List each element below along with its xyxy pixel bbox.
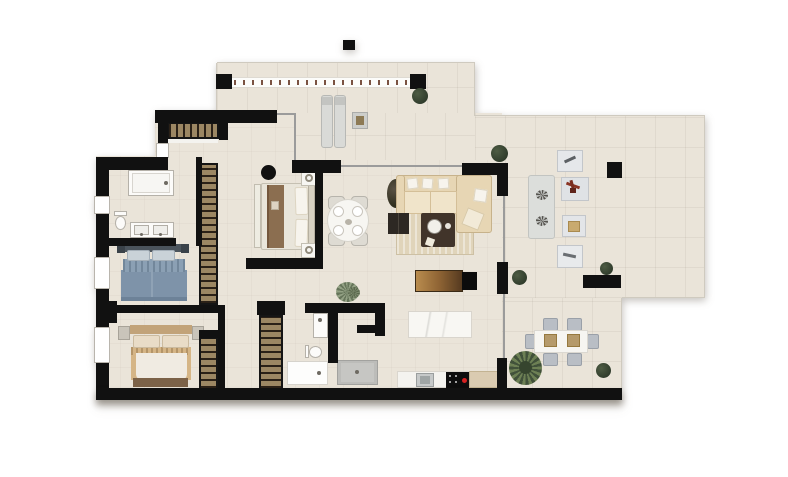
place-setting-1 — [333, 206, 344, 217]
wall-bath2-stub — [357, 325, 385, 333]
tv-console — [415, 270, 463, 292]
washbasin-2 — [313, 313, 328, 338]
wardrobe-hall — [259, 315, 283, 390]
chaise-pillow — [473, 188, 488, 203]
wall-pier-mid — [497, 262, 508, 294]
toilet-2-bowl — [309, 346, 322, 358]
wall-bath2-top — [305, 303, 385, 313]
window-bedroom3 — [94, 327, 110, 363]
sofa-pillow-2 — [422, 178, 434, 190]
terrace-plant-2 — [491, 145, 508, 162]
lounger-panel — [528, 175, 555, 239]
wardrobe-entry — [167, 122, 219, 139]
bed3-sheet — [136, 353, 187, 380]
terrace-sliding-door-lower — [503, 294, 505, 358]
wall-outer-bottom — [96, 388, 622, 400]
wall-wardrobe-cap — [199, 330, 219, 338]
wall-master-top — [155, 110, 277, 123]
bed2-duvet — [121, 270, 187, 300]
pouf-3-cushion — [568, 221, 580, 232]
master-bed-headboard — [308, 184, 315, 250]
hob-red-indicator — [462, 378, 467, 383]
placemat-2 — [567, 334, 580, 347]
railing-post-left — [216, 74, 232, 89]
wall-bath2-mid — [328, 313, 338, 363]
dried-plant-pot — [570, 188, 576, 193]
terrace-plant-4 — [600, 262, 613, 275]
sofa-seat-divider — [430, 191, 431, 214]
terrace-sliding-door-upper — [503, 196, 505, 262]
wall-master-right — [315, 166, 323, 262]
window-bedroom2 — [94, 257, 110, 289]
bed3-foot-bench — [133, 378, 188, 387]
wall-wardrobe-entry-cap — [219, 121, 228, 140]
column-round — [261, 165, 276, 180]
terrace-right-floor — [475, 116, 705, 298]
hob-burner-1 — [449, 375, 451, 377]
place-setting-2 — [352, 206, 363, 217]
hallway-plant-leaves — [348, 287, 360, 298]
bed2-pillow-right — [152, 250, 175, 261]
terrace-plant-1 — [412, 88, 428, 104]
table-centerpiece — [345, 219, 352, 225]
side-table-split — [398, 213, 399, 234]
shower-drain — [355, 370, 359, 374]
terrace-plant-5 — [596, 363, 611, 378]
laundry-machine-knob — [317, 371, 321, 375]
bed2-duvet-crease — [151, 270, 153, 300]
wall-master-bottom — [246, 258, 323, 269]
master-lamp-bottom — [305, 246, 313, 254]
wall-corridor-right — [218, 305, 225, 390]
coffee-table-cup — [445, 223, 451, 229]
terrace-edge-step — [474, 63, 475, 116]
wall-pier-upper — [497, 163, 508, 196]
railing-balusters — [234, 80, 408, 85]
placemat-1 — [544, 334, 557, 347]
terrace-edge-right — [704, 116, 705, 298]
kitchen-island — [408, 311, 472, 338]
terrace-edge-top — [217, 62, 475, 63]
wall-bath1-right — [196, 157, 202, 246]
apartment-floor-plan — [0, 0, 788, 477]
wardrobe-bedroom3 — [199, 337, 218, 390]
bed2-foot-edge — [121, 297, 187, 301]
place-setting-3 — [333, 225, 344, 236]
washbasin-2-faucet — [318, 318, 322, 322]
bed2-pillow-left — [127, 250, 150, 261]
bed3-nightstand-left — [118, 326, 130, 340]
master-bed-tray — [271, 201, 279, 210]
faucet-left — [140, 233, 143, 236]
sofa-pillow-3 — [438, 178, 450, 190]
place-setting-4 — [352, 225, 363, 236]
sunbed-side-table-tray — [356, 116, 364, 125]
terrace-edge-upper — [475, 115, 705, 116]
lounger-parasol-1 — [536, 190, 548, 200]
outdoor-chair-e — [587, 334, 599, 349]
window-bathroom — [94, 196, 110, 214]
hob-burner-2 — [449, 381, 451, 383]
master-bed-bench — [254, 184, 261, 248]
bed3-pillow-left — [133, 335, 160, 348]
living-window — [341, 165, 462, 167]
lounger-parasol-2 — [536, 216, 548, 226]
floor-plan-screenshot — [0, 0, 788, 477]
window-upper-left — [156, 143, 169, 158]
outdoor-chair-s1 — [543, 353, 558, 366]
terrace-plant-3 — [512, 270, 527, 285]
wall-hall-wardrobe-cap — [257, 301, 285, 315]
bed3-pillow-right — [162, 335, 189, 348]
laundry-counter — [287, 361, 328, 385]
terrace-column-square — [607, 162, 622, 178]
wardrobe-entry-track — [168, 139, 218, 143]
railing-post-right — [410, 74, 426, 89]
coffee-table-tray — [427, 219, 442, 234]
bed2-headboard-end-right — [181, 244, 189, 253]
terrace-edge-notch — [622, 297, 705, 298]
terrace-big-plant-core — [519, 361, 532, 374]
bed3-headboard — [130, 325, 192, 334]
sofa-pillow-1 — [406, 177, 418, 189]
master-window-side — [294, 114, 296, 162]
master-lamp-top — [305, 174, 313, 182]
tv-console-cabinet — [462, 272, 477, 290]
kitchen-sink-basin — [420, 376, 430, 384]
faucet-right — [159, 233, 162, 236]
hob-burner-3 — [455, 375, 457, 377]
wall-bedroom-divider — [113, 305, 223, 313]
bathtub-drain — [164, 181, 168, 185]
outdoor-chair-s2 — [567, 353, 582, 366]
sunbed-2-headrest — [335, 97, 345, 105]
toilet-1-bowl — [115, 216, 126, 230]
wall-pier-lower — [497, 358, 507, 390]
wall-bath1-bottom — [96, 238, 176, 246]
terrace-wall-stub — [583, 275, 621, 288]
master-bed-throw — [267, 185, 284, 248]
hob-burner-4 — [455, 381, 457, 383]
north-tick-mark — [343, 40, 355, 50]
master-bed-pillow-top — [295, 187, 309, 215]
terrace-edge-lower-right — [621, 298, 622, 392]
sunbed-1-headrest — [322, 97, 332, 105]
